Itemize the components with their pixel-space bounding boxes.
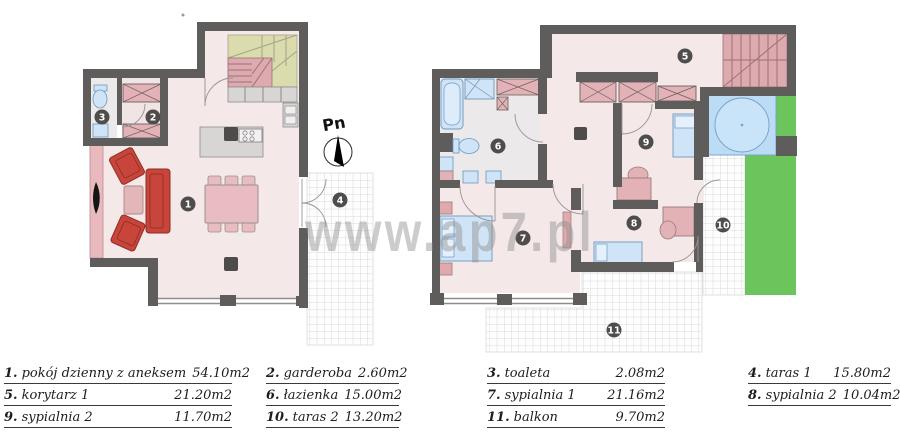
room-label-11: 11	[607, 323, 622, 338]
legend-area: 11.70m2	[174, 410, 232, 425]
legend-entry-7: 7. sypialnia 1 21.16m2	[487, 388, 665, 406]
legend-area: 21.16m2	[607, 388, 665, 403]
stairs-right	[723, 34, 787, 87]
legend-entry-6: 6. łazienka 15.00m2	[266, 388, 399, 406]
legend-number: 7.	[487, 388, 501, 403]
legend-entry-2: 2. garderoba 2.60m2	[266, 366, 399, 384]
room-label-6: 6	[491, 139, 506, 154]
column	[224, 257, 238, 271]
coffee-table	[124, 186, 143, 214]
svg-text:8: 8	[631, 218, 638, 229]
legend-room-name: balkon	[514, 410, 558, 425]
legend-number: 11.	[487, 410, 510, 425]
legend-room-name: garderoba	[284, 366, 352, 381]
legend-number: 3.	[487, 366, 501, 381]
legend-area: 13.20m2	[345, 410, 403, 425]
lawn-strip	[776, 95, 796, 136]
legend-room-name: korytarz 1	[22, 388, 90, 403]
sofa	[146, 169, 170, 233]
svg-text:3: 3	[99, 112, 106, 123]
legend-number: 10.	[266, 410, 289, 425]
legend-entry-4: 4. taras 1 15.80m2	[748, 366, 891, 384]
legend-number: 8.	[748, 388, 762, 403]
legend-number: 5.	[4, 388, 18, 403]
left-plan	[83, 14, 373, 346]
compass-label: Pn	[321, 112, 347, 135]
stray-dot	[182, 14, 185, 17]
legend-room-name: sypialnia 1	[505, 388, 576, 403]
svg-text:2: 2	[150, 112, 157, 123]
svg-text:11: 11	[607, 325, 620, 336]
room-label-5: 5	[678, 49, 693, 64]
svg-text:1: 1	[185, 199, 192, 210]
legend-entry-8: 8. sypialnia 2 10.04m2	[748, 388, 891, 406]
lawn	[745, 155, 796, 295]
legend-entry-1: 1. pokój dzienny z aneksem 54.10m2	[4, 366, 232, 384]
dining-set	[205, 176, 258, 232]
legend-area: 2.08m2	[615, 366, 665, 381]
svg-text:9: 9	[643, 137, 650, 148]
desk-room8	[660, 207, 694, 239]
room-label-10: 10	[716, 218, 731, 233]
legend-number: 9.	[4, 410, 18, 425]
room-label-8: 8	[627, 216, 642, 231]
legend-room-name: taras 2	[293, 410, 339, 425]
legend-area: 2.60m2	[358, 366, 408, 381]
bed-room8	[594, 242, 642, 263]
legend-area: 54.10m2	[192, 366, 250, 381]
floorplan-page: Pn 1 2 3 4 5 6 7 8 9 10 11 www.ap7.pl 1.…	[0, 0, 900, 448]
legend-number: 1.	[4, 366, 18, 381]
legend-area: 15.00m2	[344, 388, 402, 403]
legend-entry-9: 9. sypialnia 2 11.70m2	[4, 410, 232, 428]
legend-room-name: toaleta	[505, 366, 551, 381]
legend-entry-5: 5. korytarz 1 21.20m2	[4, 388, 232, 406]
legend-area: 21.20m2	[174, 388, 232, 403]
legend-entry-3: 3. toaleta 2.08m2	[487, 366, 665, 384]
legend-area: 10.04m2	[843, 388, 900, 403]
legend-entry-10: 10. taras 2 13.20m2	[266, 410, 399, 428]
jacuzzi	[708, 95, 776, 155]
column	[574, 127, 587, 140]
legend-area: 15.80m2	[833, 366, 891, 381]
legend-number: 4.	[748, 366, 762, 381]
room-label-3: 3	[95, 110, 110, 125]
legend-area: 9.70m2	[615, 410, 665, 425]
room-label-2: 2	[146, 110, 161, 125]
legend-room-name: taras 1	[766, 366, 812, 381]
svg-text:5: 5	[682, 51, 689, 62]
right-plan	[430, 25, 797, 352]
legend-number: 6.	[266, 388, 280, 403]
room-label-9: 9	[639, 135, 654, 150]
room-label-1: 1	[181, 197, 196, 212]
watermark-text: www.ap7.pl	[304, 200, 595, 263]
legend-number: 2.	[266, 366, 280, 381]
svg-text:10: 10	[716, 220, 730, 231]
legend-room-name: łazienka	[284, 388, 339, 403]
stairs-left	[228, 35, 297, 87]
compass: Pn	[321, 112, 352, 167]
bed-room9	[673, 114, 697, 157]
legend-entry-11: 11. balkon 9.70m2	[487, 410, 665, 428]
kitchen-island	[200, 127, 263, 157]
svg-text:6: 6	[495, 141, 502, 152]
legend-room-name: sypialnia 2	[766, 388, 837, 403]
legend-room-name: sypialnia 2	[22, 410, 93, 425]
legend-room-name: pokój dzienny z aneksem	[22, 366, 187, 381]
